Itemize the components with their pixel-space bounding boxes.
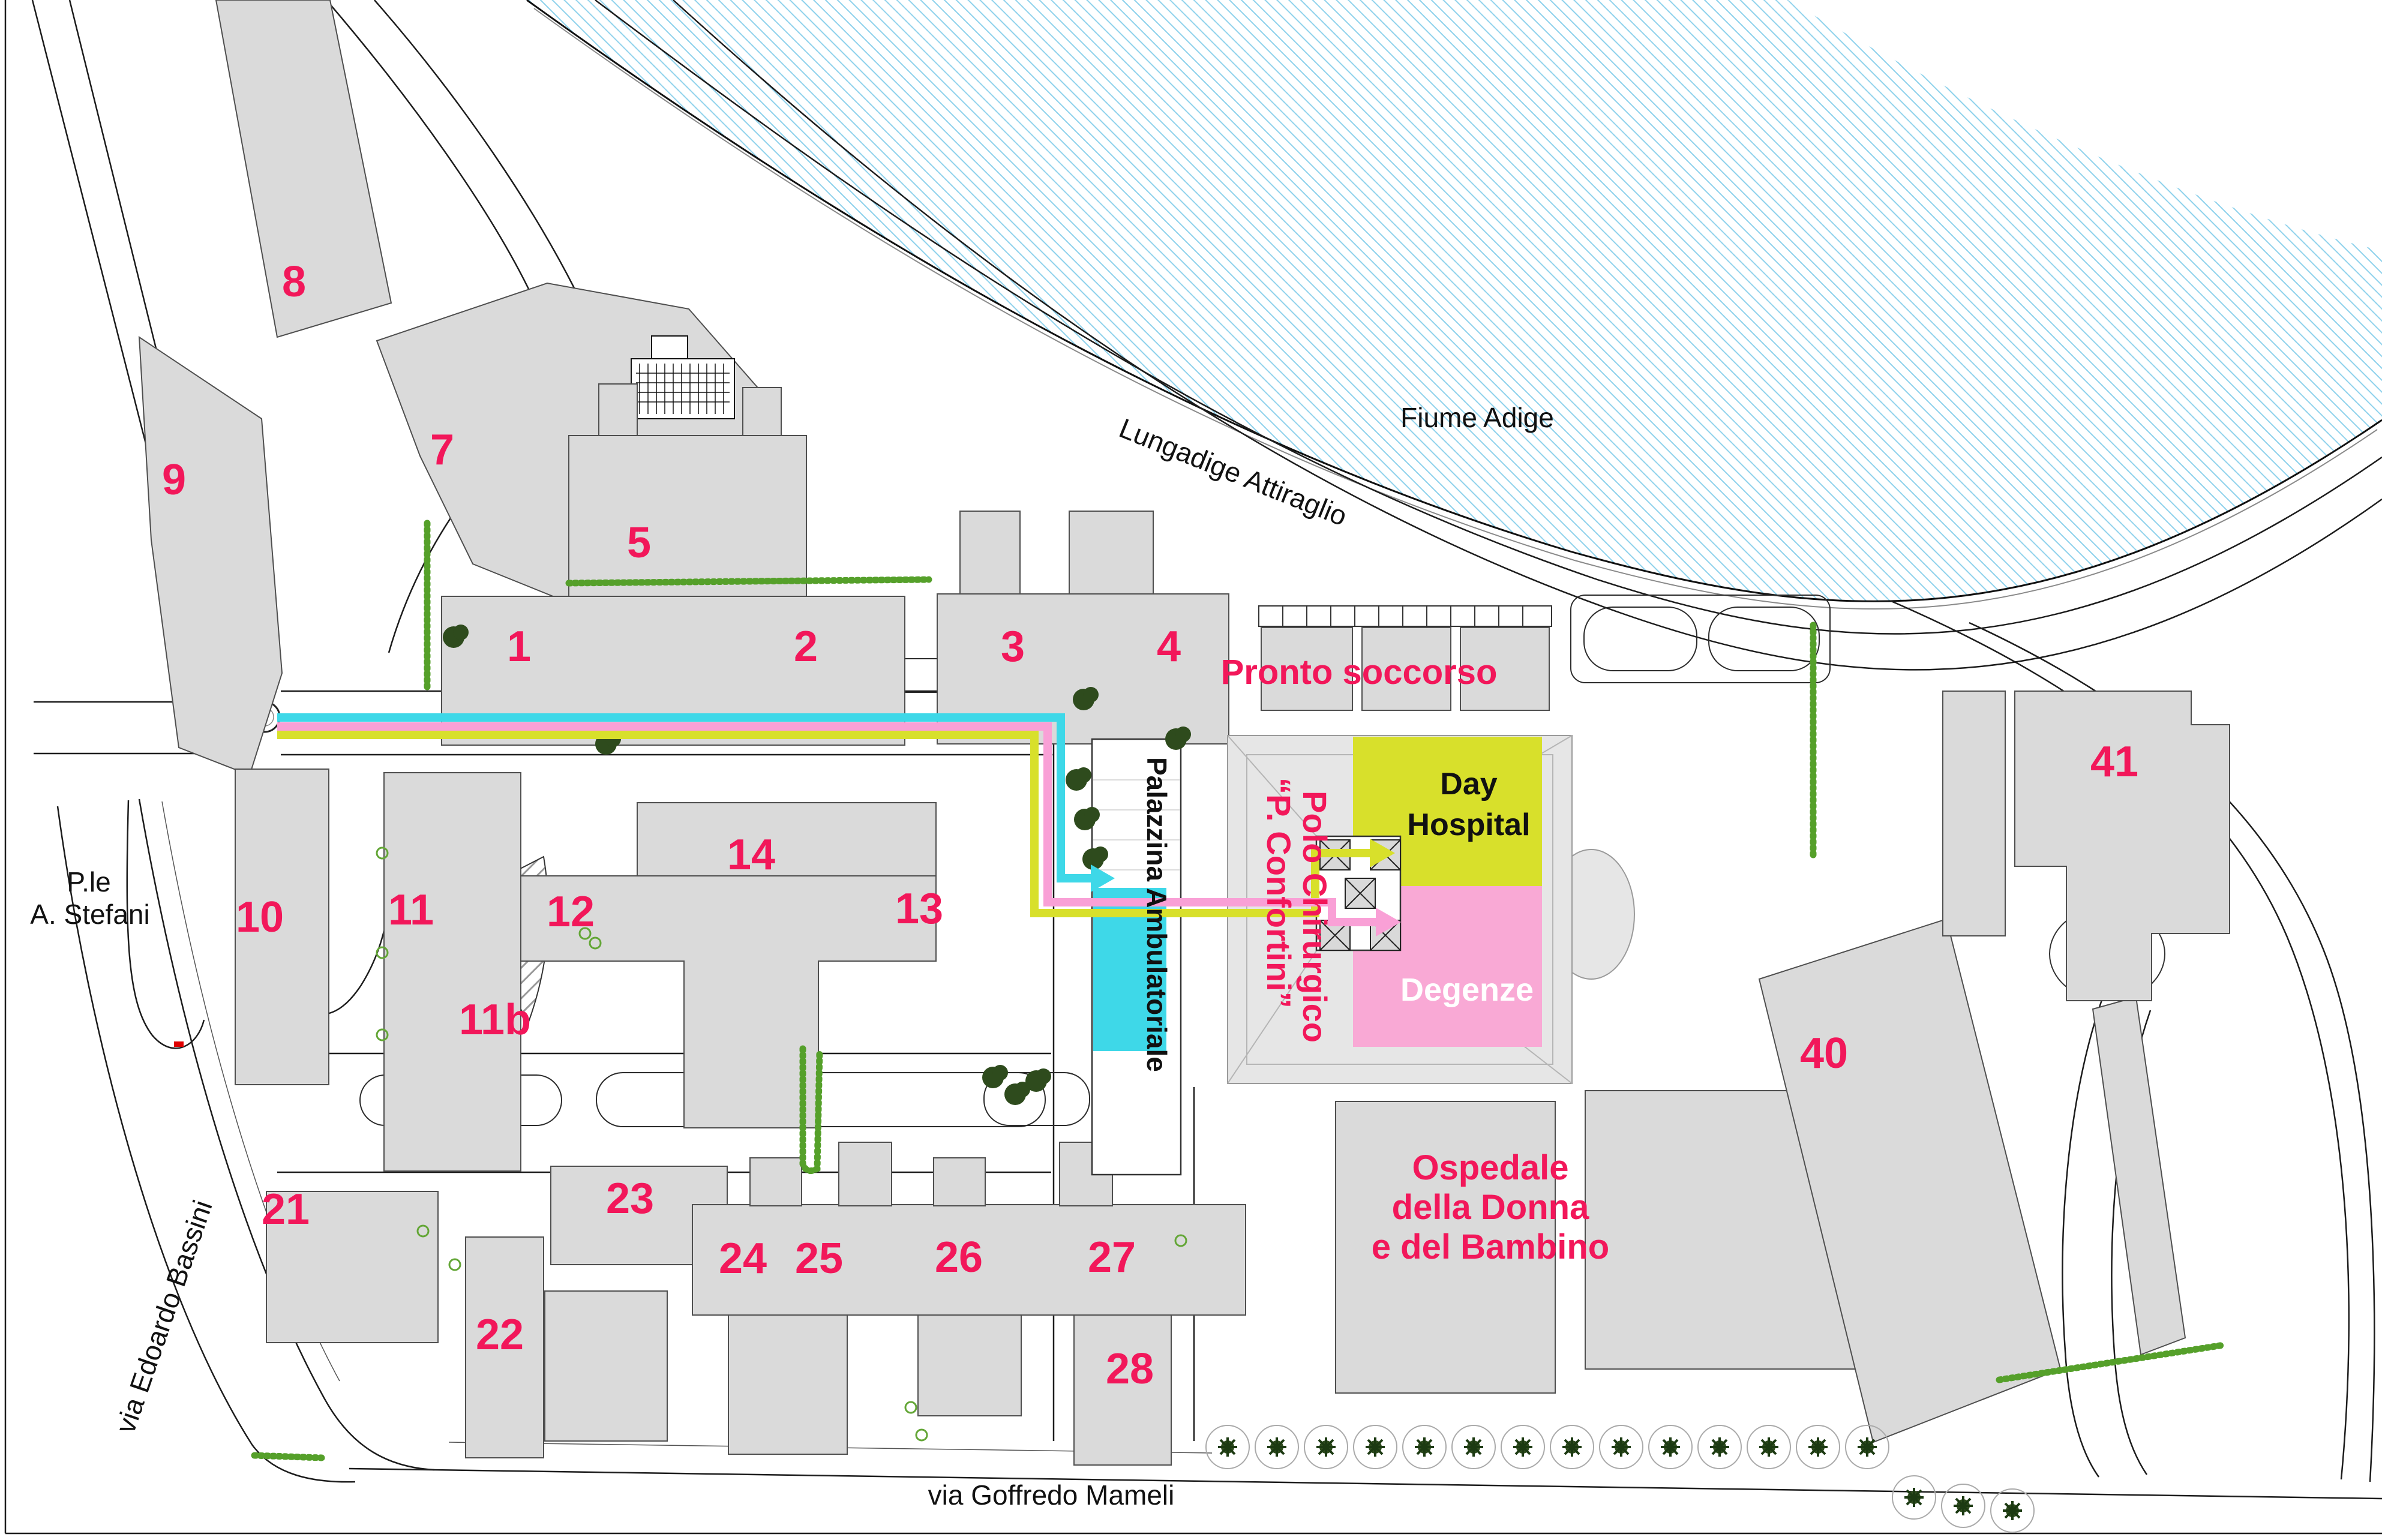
road-line (374, 0, 575, 289)
building-shape (750, 1158, 802, 1206)
building-number: 10 (236, 893, 284, 941)
building-number: 41 (2090, 738, 2138, 786)
building-11-shape (384, 773, 521, 1171)
hedge (569, 580, 929, 583)
building-number: 24 (719, 1235, 767, 1283)
mameli-label: via Goffredo Mameli (928, 1479, 1175, 1511)
stefani-label-line2: A. Stefani (30, 899, 149, 930)
building-shape (728, 1315, 847, 1454)
ospedale-label-line1: Ospedale (1412, 1148, 1568, 1187)
building-shape (918, 1315, 1021, 1416)
day-hospital-label-line1: Day (1440, 767, 1497, 801)
building-40-shape (1943, 691, 2005, 936)
road-line (2062, 998, 2102, 1477)
building-number: 12 (547, 888, 595, 936)
building-14-shape (637, 803, 936, 876)
building-shape (934, 1158, 985, 1206)
tree-row-mameli (1206, 1425, 2034, 1532)
building-number: 22 (476, 1311, 524, 1359)
shrub-icon (916, 1430, 927, 1440)
building-number: 8 (282, 258, 306, 306)
building-number: 27 (1088, 1233, 1136, 1281)
building-number: 26 (935, 1233, 983, 1281)
polo-chirurgico-label-line2: “P. Confortini” (1260, 777, 1298, 1008)
building-number: 3 (1001, 623, 1025, 671)
building-number: 25 (795, 1235, 843, 1283)
building-number: 11b (459, 996, 531, 1044)
building-shape (839, 1142, 892, 1206)
campus-map: Fiume Adige Lungadige Attiraglio via Gof… (0, 0, 2382, 1540)
parking-lot-north (1584, 607, 1697, 671)
building-number: 28 (1106, 1345, 1154, 1393)
tree-icon (982, 1065, 1008, 1088)
palazzina-label: Palazzina Ambulatoriale (1141, 757, 1172, 1072)
building-number: 13 (895, 885, 943, 933)
building-number: 2 (794, 623, 818, 671)
pronto-soccorso-label: Pronto soccorso (1221, 653, 1498, 692)
building-number: 23 (606, 1175, 654, 1223)
building-number: 11 (388, 886, 434, 934)
canopy-row (1259, 606, 1552, 626)
building-5-shape (599, 384, 637, 436)
river-label: Fiume Adige (1400, 402, 1554, 433)
building-shape (1069, 511, 1153, 594)
bassini-label: via Edoardo Bassini (109, 1196, 218, 1437)
building-5-shape (743, 388, 781, 436)
shrub-icon (449, 1259, 460, 1270)
day-hospital-label-line2: Hospital (1407, 807, 1530, 842)
tree-icon (1066, 767, 1091, 791)
polo-chirurgico-label-line1: Polo Chirurgico (1296, 791, 1334, 1043)
building-number: 9 (162, 456, 186, 504)
building-9-shape (139, 337, 282, 775)
ospedale-label-line2: della Donna (1392, 1188, 1589, 1227)
red-marker (174, 1041, 184, 1047)
building-shape (2093, 997, 2185, 1355)
building-number: 5 (627, 519, 651, 567)
building-number: 21 (262, 1185, 310, 1233)
road-via-mameli (349, 1469, 2382, 1499)
building-number: 4 (1157, 623, 1181, 671)
hedge (254, 1455, 322, 1458)
building-number: 40 (1800, 1029, 1848, 1077)
tree-icon (1025, 1068, 1051, 1092)
building-number: 1 (507, 623, 531, 671)
ospedale-label-line3: e del Bambino (1372, 1227, 1609, 1266)
building-number: 14 (727, 831, 775, 879)
degenze-label: Degenze (1400, 972, 1534, 1008)
building-shape (960, 511, 1020, 594)
building-number: 7 (430, 426, 454, 474)
stefani-label-line1: P.le (67, 866, 110, 897)
building-22-23-connector (545, 1291, 667, 1441)
shrub-icon (905, 1402, 916, 1413)
